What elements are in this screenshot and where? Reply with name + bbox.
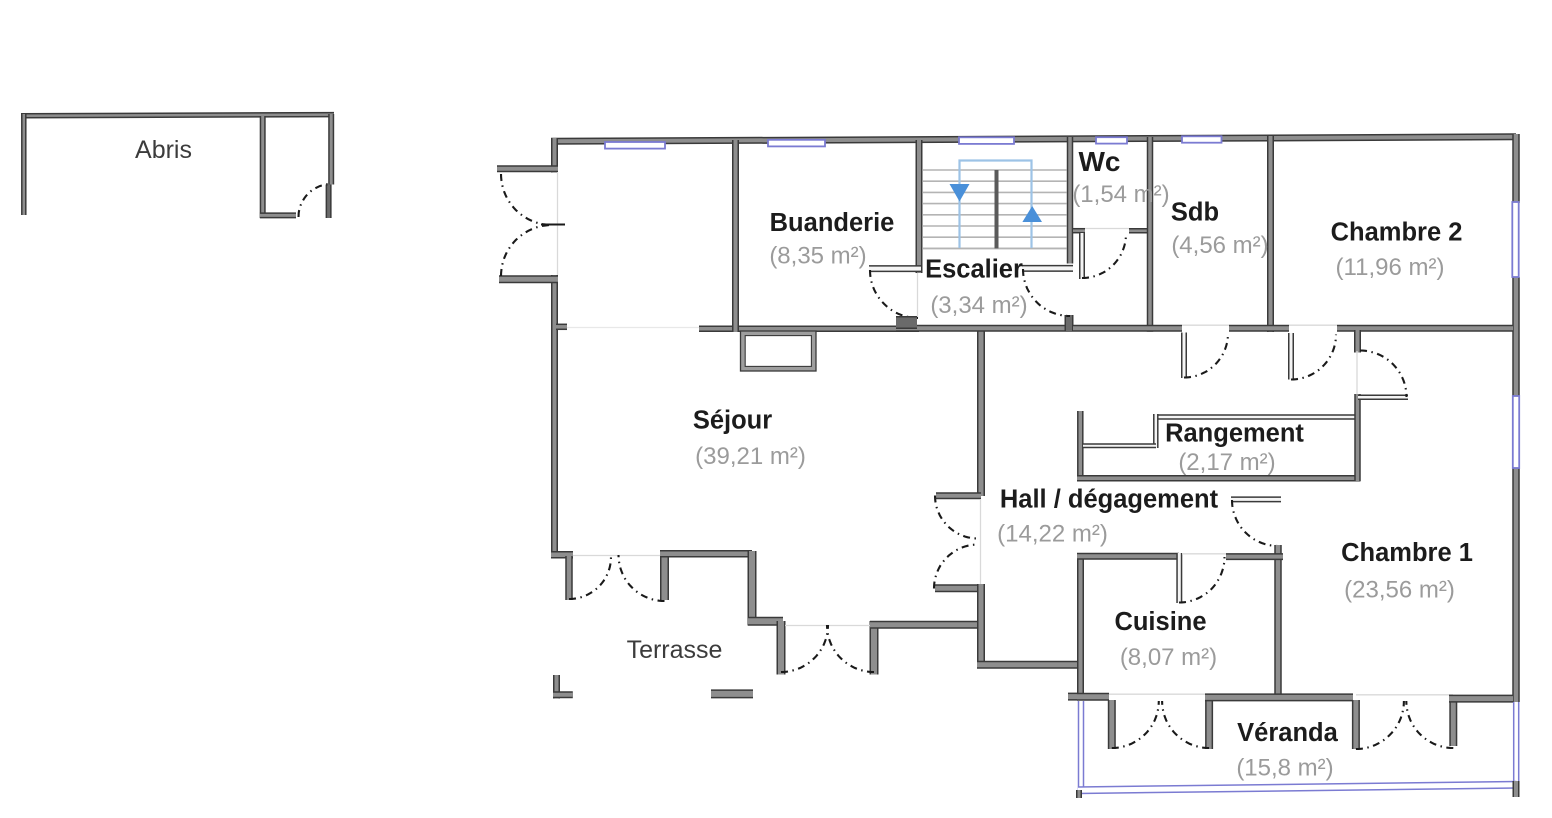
svg-text:(8,35 m²): (8,35 m²) <box>769 243 866 270</box>
svg-text:(23,56 m²): (23,56 m²) <box>1344 577 1455 604</box>
svg-text:Terrasse: Terrasse <box>627 636 723 664</box>
svg-text:(15,8 m²): (15,8 m²) <box>1236 755 1333 782</box>
svg-text:Abris: Abris <box>135 136 192 164</box>
svg-text:(39,21 m²): (39,21 m²) <box>695 443 806 470</box>
svg-text:Rangement: Rangement <box>1165 420 1304 448</box>
svg-text:Séjour: Séjour <box>693 407 772 435</box>
svg-text:(4,56 m²): (4,56 m²) <box>1171 232 1268 259</box>
svg-text:Chambre 1: Chambre 1 <box>1341 539 1473 567</box>
svg-text:Véranda: Véranda <box>1237 719 1338 747</box>
svg-text:Sdb: Sdb <box>1171 199 1219 227</box>
svg-text:Escalier: Escalier <box>925 256 1023 284</box>
svg-text:(8,07 m²): (8,07 m²) <box>1120 644 1217 671</box>
svg-text:Cuisine: Cuisine <box>1114 608 1206 636</box>
svg-text:Hall / dégagement: Hall / dégagement <box>1000 486 1219 514</box>
svg-text:Buanderie: Buanderie <box>770 209 895 237</box>
svg-text:(3,34 m²): (3,34 m²) <box>930 292 1027 319</box>
svg-text:(2,17 m²): (2,17 m²) <box>1178 449 1275 476</box>
svg-text:Chambre 2: Chambre 2 <box>1331 219 1463 247</box>
svg-text:(1,54 m²): (1,54 m²) <box>1072 181 1169 208</box>
svg-text:Wc: Wc <box>1079 146 1121 177</box>
svg-text:(11,96 m²): (11,96 m²) <box>1336 254 1445 281</box>
svg-text:(14,22 m²): (14,22 m²) <box>997 521 1108 548</box>
